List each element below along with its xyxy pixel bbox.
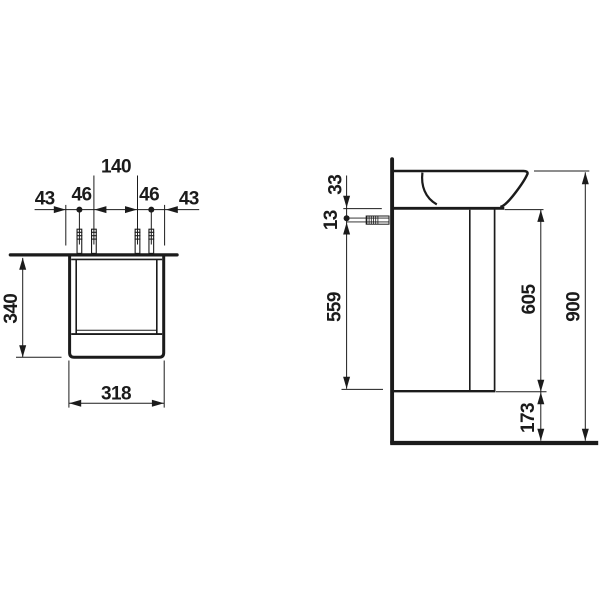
svg-text:605: 605 bbox=[519, 284, 540, 315]
svg-text:43: 43 bbox=[35, 189, 55, 210]
svg-text:33: 33 bbox=[326, 175, 347, 195]
svg-text:340: 340 bbox=[1, 294, 22, 324]
svg-text:43: 43 bbox=[179, 189, 199, 210]
svg-text:900: 900 bbox=[564, 292, 585, 322]
svg-text:173: 173 bbox=[518, 403, 539, 433]
svg-text:140: 140 bbox=[101, 157, 131, 178]
svg-text:46: 46 bbox=[72, 185, 92, 206]
svg-text:46: 46 bbox=[139, 185, 159, 206]
svg-text:559: 559 bbox=[324, 292, 345, 322]
svg-text:318: 318 bbox=[101, 383, 131, 404]
svg-text:13: 13 bbox=[321, 210, 342, 230]
